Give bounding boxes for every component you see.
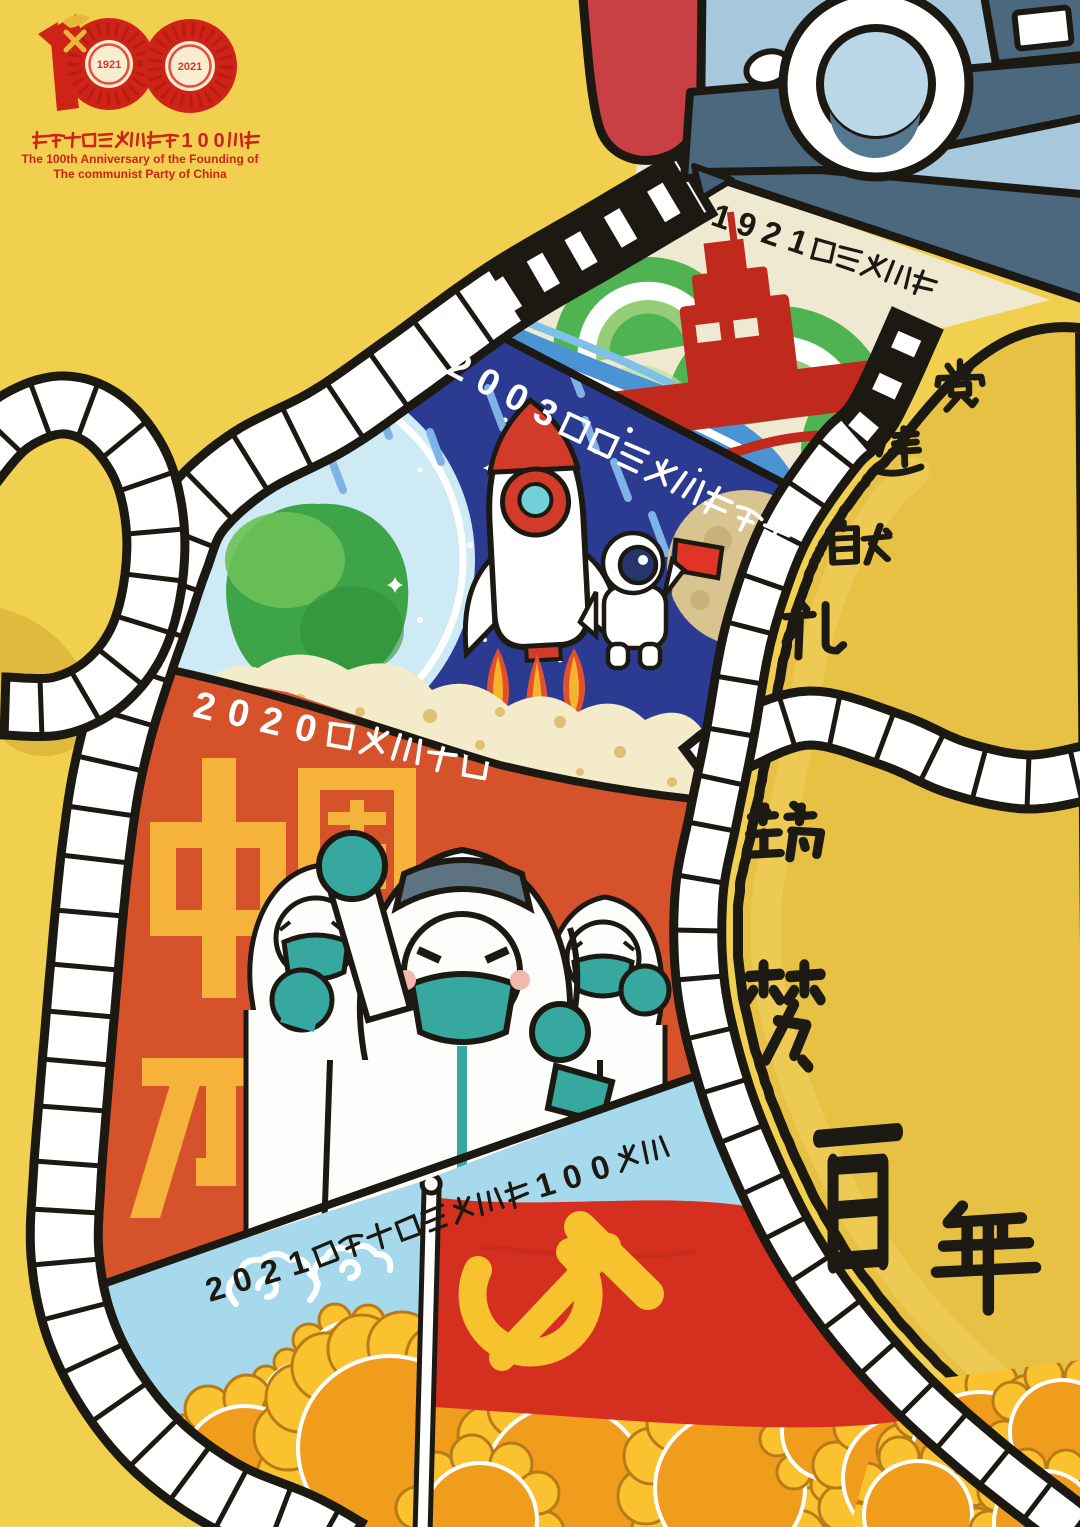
svg-text:1: 1 xyxy=(181,130,192,152)
svg-text:1921: 1921 xyxy=(97,59,121,71)
svg-text:0: 0 xyxy=(197,130,208,152)
svg-text:The communist Party of China: The communist Party of China xyxy=(53,167,227,181)
svg-text:0: 0 xyxy=(213,130,224,152)
svg-text:The 100th Anniversary of the F: The 100th Anniversary of the Founding of xyxy=(22,152,260,166)
svg-text:2021: 2021 xyxy=(178,61,202,73)
